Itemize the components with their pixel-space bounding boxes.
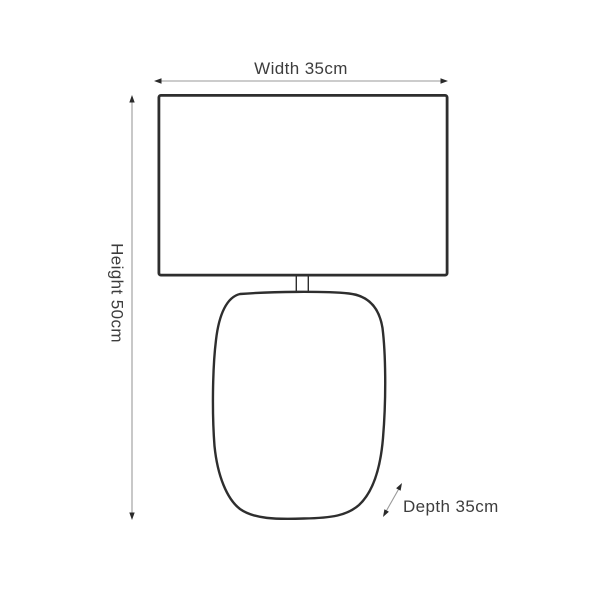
- height-label: Height 50cm: [108, 243, 127, 343]
- height-dimension: Height 50cm: [108, 95, 135, 520]
- depth-label: Depth 35cm: [403, 497, 499, 516]
- lamp-shade: [159, 95, 447, 275]
- height-arrow-bottom-icon: [129, 513, 134, 521]
- width-arrow-right-icon: [441, 78, 449, 83]
- diagram-svg: Width 35cm Height 50cm Depth 35cm: [0, 0, 602, 602]
- depth-dimension: Depth 35cm: [383, 483, 499, 517]
- width-dimension: Width 35cm: [154, 59, 448, 84]
- lamp-base: [213, 292, 385, 519]
- lamp-dimension-diagram: Width 35cm Height 50cm Depth 35cm: [0, 0, 602, 602]
- depth-arrow-top-icon: [396, 483, 402, 491]
- lamp-drawing: [159, 95, 447, 518]
- height-arrow-top-icon: [129, 95, 134, 103]
- depth-arrow-bottom-icon: [383, 509, 389, 517]
- width-label: Width 35cm: [254, 59, 348, 78]
- width-arrow-left-icon: [154, 78, 162, 83]
